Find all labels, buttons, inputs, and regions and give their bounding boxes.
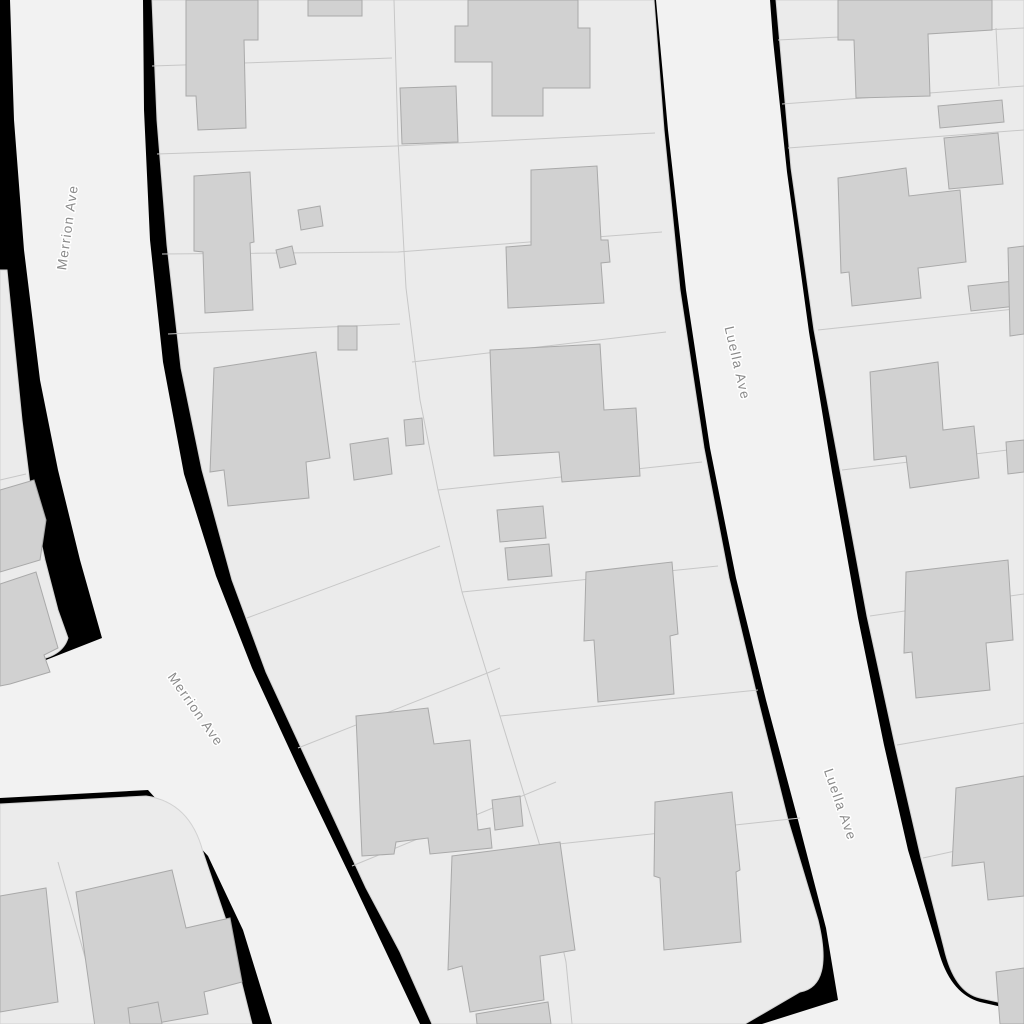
building-footprint: [654, 792, 741, 950]
building-footprint: [298, 206, 323, 230]
building-footprint: [505, 544, 552, 580]
map-canvas[interactable]: Merrion AveMerrion AveLuella AveLuella A…: [0, 0, 1024, 1024]
map-viewport: Merrion AveMerrion AveLuella AveLuella A…: [0, 0, 1024, 1024]
building-footprint: [276, 246, 296, 268]
building-footprint: [944, 133, 1003, 189]
building-footprint: [584, 562, 678, 702]
building-footprint: [404, 418, 424, 446]
building-footprint: [1008, 246, 1024, 336]
building-footprint: [350, 438, 392, 480]
building-footprint: [1006, 440, 1024, 474]
building-footprint: [338, 326, 357, 350]
building-footprint: [308, 0, 362, 16]
building-footprint: [996, 968, 1024, 1024]
building-footprint: [492, 796, 523, 830]
building-footprint: [400, 86, 458, 144]
building-footprint: [497, 506, 546, 542]
